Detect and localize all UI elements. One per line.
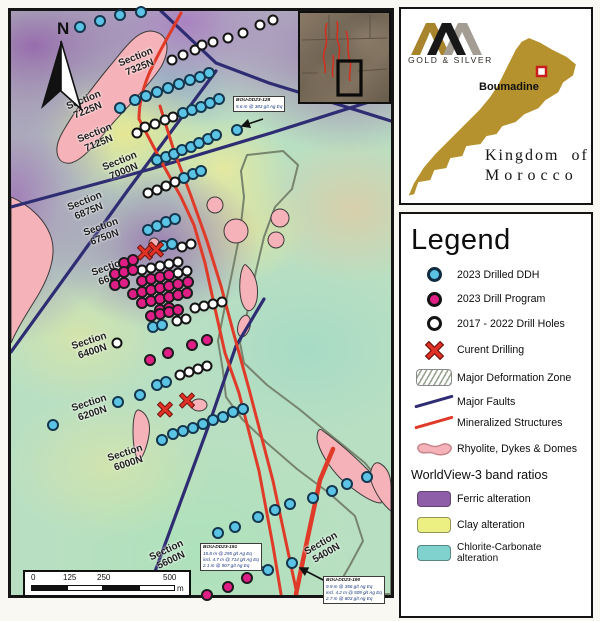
drill-hole-2023-program — [222, 581, 234, 593]
drill-hole-2023-ddh — [231, 124, 243, 136]
drill-hole-2017-2022 — [182, 266, 193, 277]
drill-hole-2023-ddh — [307, 492, 319, 504]
drill-hole-2023-ddh — [156, 319, 168, 331]
legend-item: 2017 - 2022 Drill Holes — [411, 316, 585, 331]
drill-hole-2023-ddh — [341, 478, 353, 490]
drill-hole-2023-ddh — [262, 564, 274, 576]
drill-hole-2023-ddh — [210, 129, 222, 141]
boumadine-label: Boumadine — [479, 81, 539, 93]
drill-hole-2017-2022 — [255, 20, 266, 31]
drill-hole-2017-2022 — [197, 40, 208, 51]
rhyolite-icon — [413, 439, 455, 459]
drill-hole-2023-ddh — [156, 434, 168, 446]
scale-tick: 0 — [31, 573, 35, 582]
drill-hole-2017-2022 — [173, 257, 184, 268]
drill-hole-2023-ddh — [203, 67, 215, 79]
location-panel: GOLD & SILVER Boumadine Kingdom of Moroc… — [399, 7, 593, 205]
drill-hole-2017-2022 — [178, 50, 189, 61]
ddh-2023-icon — [427, 267, 442, 282]
drill-hole-2023-program — [172, 304, 184, 316]
country-name: Kingdom of Morocco — [485, 147, 589, 185]
drill-hole-2023-ddh — [195, 165, 207, 177]
drill-hole-2023-ddh — [213, 93, 225, 105]
deformation-zone-icon — [416, 369, 452, 386]
drill-hole-2023-ddh — [112, 396, 124, 408]
drill-hole-2017-2022 — [208, 37, 219, 48]
drill-hole-2017-2022 — [238, 28, 249, 39]
major-faults-icon — [414, 394, 453, 408]
north-arrow: N — [29, 19, 93, 123]
drill-hole-2023-ddh — [169, 213, 181, 225]
drill-hole-2023-ddh — [286, 557, 298, 569]
drill-result-callout: BOU-DD23-19115.8 m @ 295 g/t Ag Eqincl. … — [200, 543, 262, 571]
drill-hole-2023-program — [144, 354, 156, 366]
drill-hole-2023-ddh — [114, 9, 126, 21]
drill-hole-2017-2022 — [202, 361, 213, 372]
drill-hole-2023-program — [201, 589, 213, 601]
drill-hole-2023-program — [118, 277, 130, 289]
drill-hole-2023-ddh — [47, 419, 59, 431]
drill-hole-2023-program — [181, 287, 193, 299]
band-ratios-title: WorldView-3 band ratios — [411, 468, 585, 482]
drill-hole-2023-ddh — [361, 471, 373, 483]
ferric-alteration-icon — [417, 491, 451, 507]
legend-panel: Legend 2023 Drilled DDH 2023 Drill Progr… — [399, 212, 593, 618]
current-drilling-marker — [148, 242, 164, 263]
scale-bar: 0 125 250 500 m — [23, 570, 191, 597]
boumadine-marker — [537, 67, 546, 76]
drill-hole-2023-ddh — [237, 403, 249, 415]
drill-hole-2023-program — [162, 347, 174, 359]
current-drilling-icon — [425, 341, 444, 360]
drill-hole-2023-ddh — [135, 6, 147, 18]
clay-alteration-icon — [417, 517, 451, 533]
drill-hole-2023-ddh — [269, 504, 281, 516]
drill-hole-2023-program — [201, 334, 213, 346]
drill-hole-2017-2022 — [268, 15, 279, 26]
drill-hole-2023-program — [241, 572, 253, 584]
mineralized-structures-icon — [414, 416, 453, 430]
chlorite-carbonate-alteration-icon — [417, 545, 451, 561]
drill-hole-2017-2022 — [181, 314, 192, 325]
drill-hole-2023-ddh — [134, 389, 146, 401]
geology-map-panel: N 0 125 250 500 m — [8, 8, 394, 598]
aya-logo — [409, 17, 493, 75]
drill-hole-2017-2022 — [167, 55, 178, 66]
scale-tick: 250 — [97, 573, 110, 582]
drill-hole-2017-2022 — [112, 338, 123, 349]
drill-hole-2023-ddh — [326, 485, 338, 497]
north-label: N — [57, 19, 69, 39]
current-drilling-marker — [179, 393, 195, 414]
country-line2: Morocco — [485, 167, 589, 185]
aya-logo-subtitle: GOLD & SILVER — [408, 55, 493, 65]
program-2023-icon — [427, 292, 442, 307]
holes-2017-2022-icon — [427, 316, 442, 331]
drill-hole-2023-ddh — [114, 102, 126, 114]
drill-hole-2023-ddh — [229, 521, 241, 533]
drill-hole-2023-ddh — [252, 511, 264, 523]
legend-item: 2023 Drill Program — [411, 292, 585, 307]
drill-hole-2023-ddh — [284, 498, 296, 510]
legend-item: Ferric alteration — [411, 491, 585, 507]
legend-title: Legend — [411, 224, 585, 257]
drill-hole-2023-ddh — [74, 21, 86, 33]
drill-hole-2023-program — [127, 264, 139, 276]
legend-item: Mineralized Structures — [411, 417, 585, 429]
legend-item: 2023 Drilled DDH — [411, 267, 585, 282]
legend-item: Clay alteration — [411, 517, 585, 533]
drill-hole-2017-2022 — [186, 239, 197, 250]
satellite-inset-graphics — [300, 13, 389, 102]
scale-tick: 125 — [63, 573, 76, 582]
drill-hole-2023-ddh — [212, 527, 224, 539]
drill-hole-2023-ddh — [94, 15, 106, 27]
legend-item: Chlorite-Carbonate alteration — [411, 542, 585, 564]
country-line1: Kingdom of — [485, 147, 589, 165]
drill-hole-2017-2022 — [223, 33, 234, 44]
legend-item: Major Deformation Zone — [411, 369, 585, 386]
scale-unit: m — [177, 584, 184, 593]
legend-item: Major Faults — [411, 396, 585, 408]
current-drilling-marker — [157, 402, 173, 423]
scale-tick: 500 — [163, 573, 176, 582]
drill-result-callout: BOU-DD23-1285.6 m @ 383 g/t Ag Eq — [233, 96, 285, 112]
drill-hole-2017-2022 — [170, 177, 181, 188]
satellite-inset — [298, 11, 391, 104]
drill-hole-2023-ddh — [160, 376, 172, 388]
drill-hole-2017-2022 — [168, 112, 179, 123]
legend-item: Curent Drilling — [411, 341, 585, 360]
drill-hole-2023-program — [186, 339, 198, 351]
drill-hole-2017-2022 — [217, 297, 228, 308]
legend-item: Rhyolite, Dykes & Domes — [411, 439, 585, 459]
drill-result-callout: BOU-DD23-1909.9 m @ 356 g/t Ag Eqincl. 4… — [323, 576, 385, 604]
